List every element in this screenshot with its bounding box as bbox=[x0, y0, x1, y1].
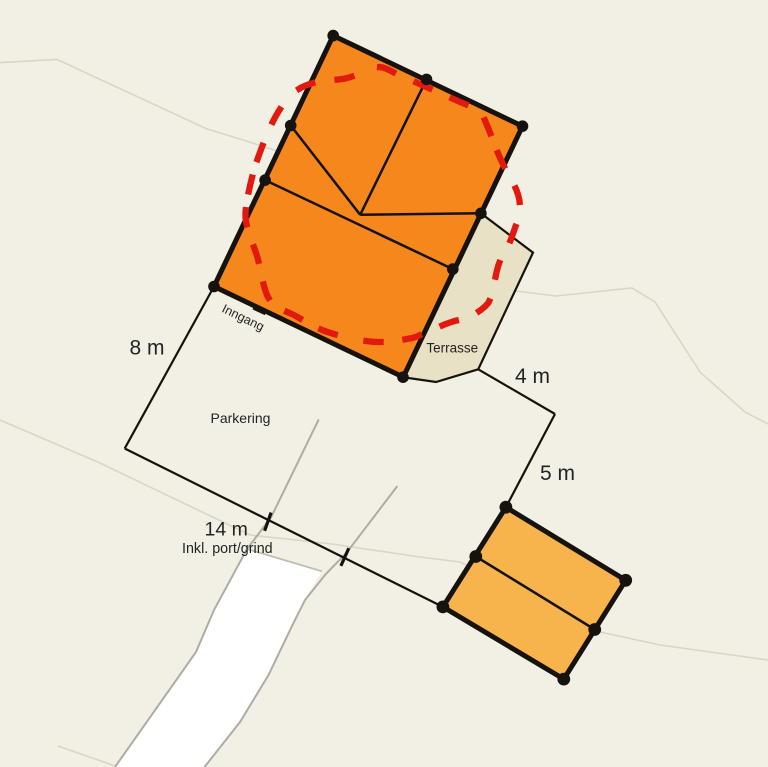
svg-text:5 m: 5 m bbox=[540, 462, 575, 485]
svg-text:Parkering: Parkering bbox=[211, 410, 271, 426]
svg-text:4 m: 4 m bbox=[515, 365, 550, 388]
svg-text:Terrasse: Terrasse bbox=[426, 341, 478, 356]
svg-text:14 m: 14 m bbox=[205, 519, 248, 541]
svg-text:Inkl. port/grind: Inkl. port/grind bbox=[182, 541, 273, 557]
svg-text:8 m: 8 m bbox=[130, 337, 165, 360]
